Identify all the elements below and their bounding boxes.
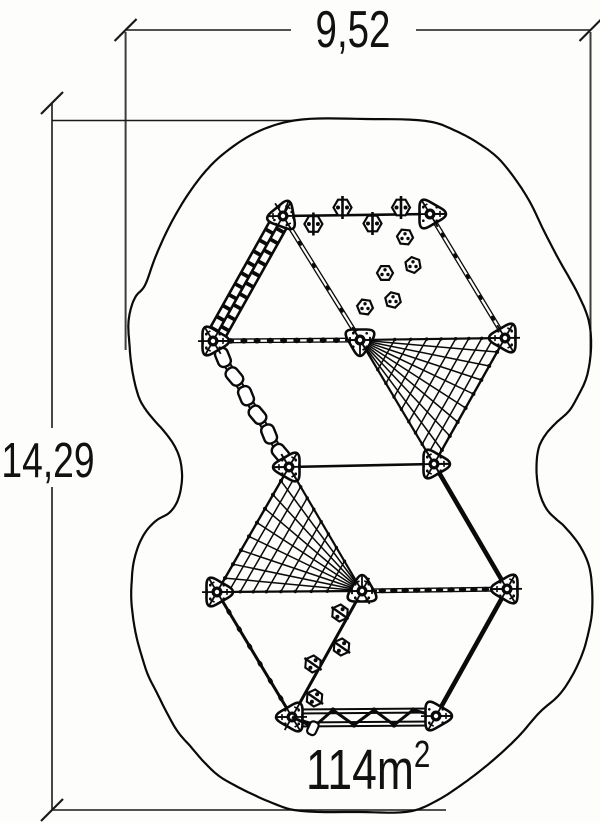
svg-text:14,29: 14,29 — [1, 434, 94, 488]
svg-text:114m2: 114m2 — [306, 734, 430, 802]
svg-text:9,52: 9,52 — [316, 0, 391, 58]
